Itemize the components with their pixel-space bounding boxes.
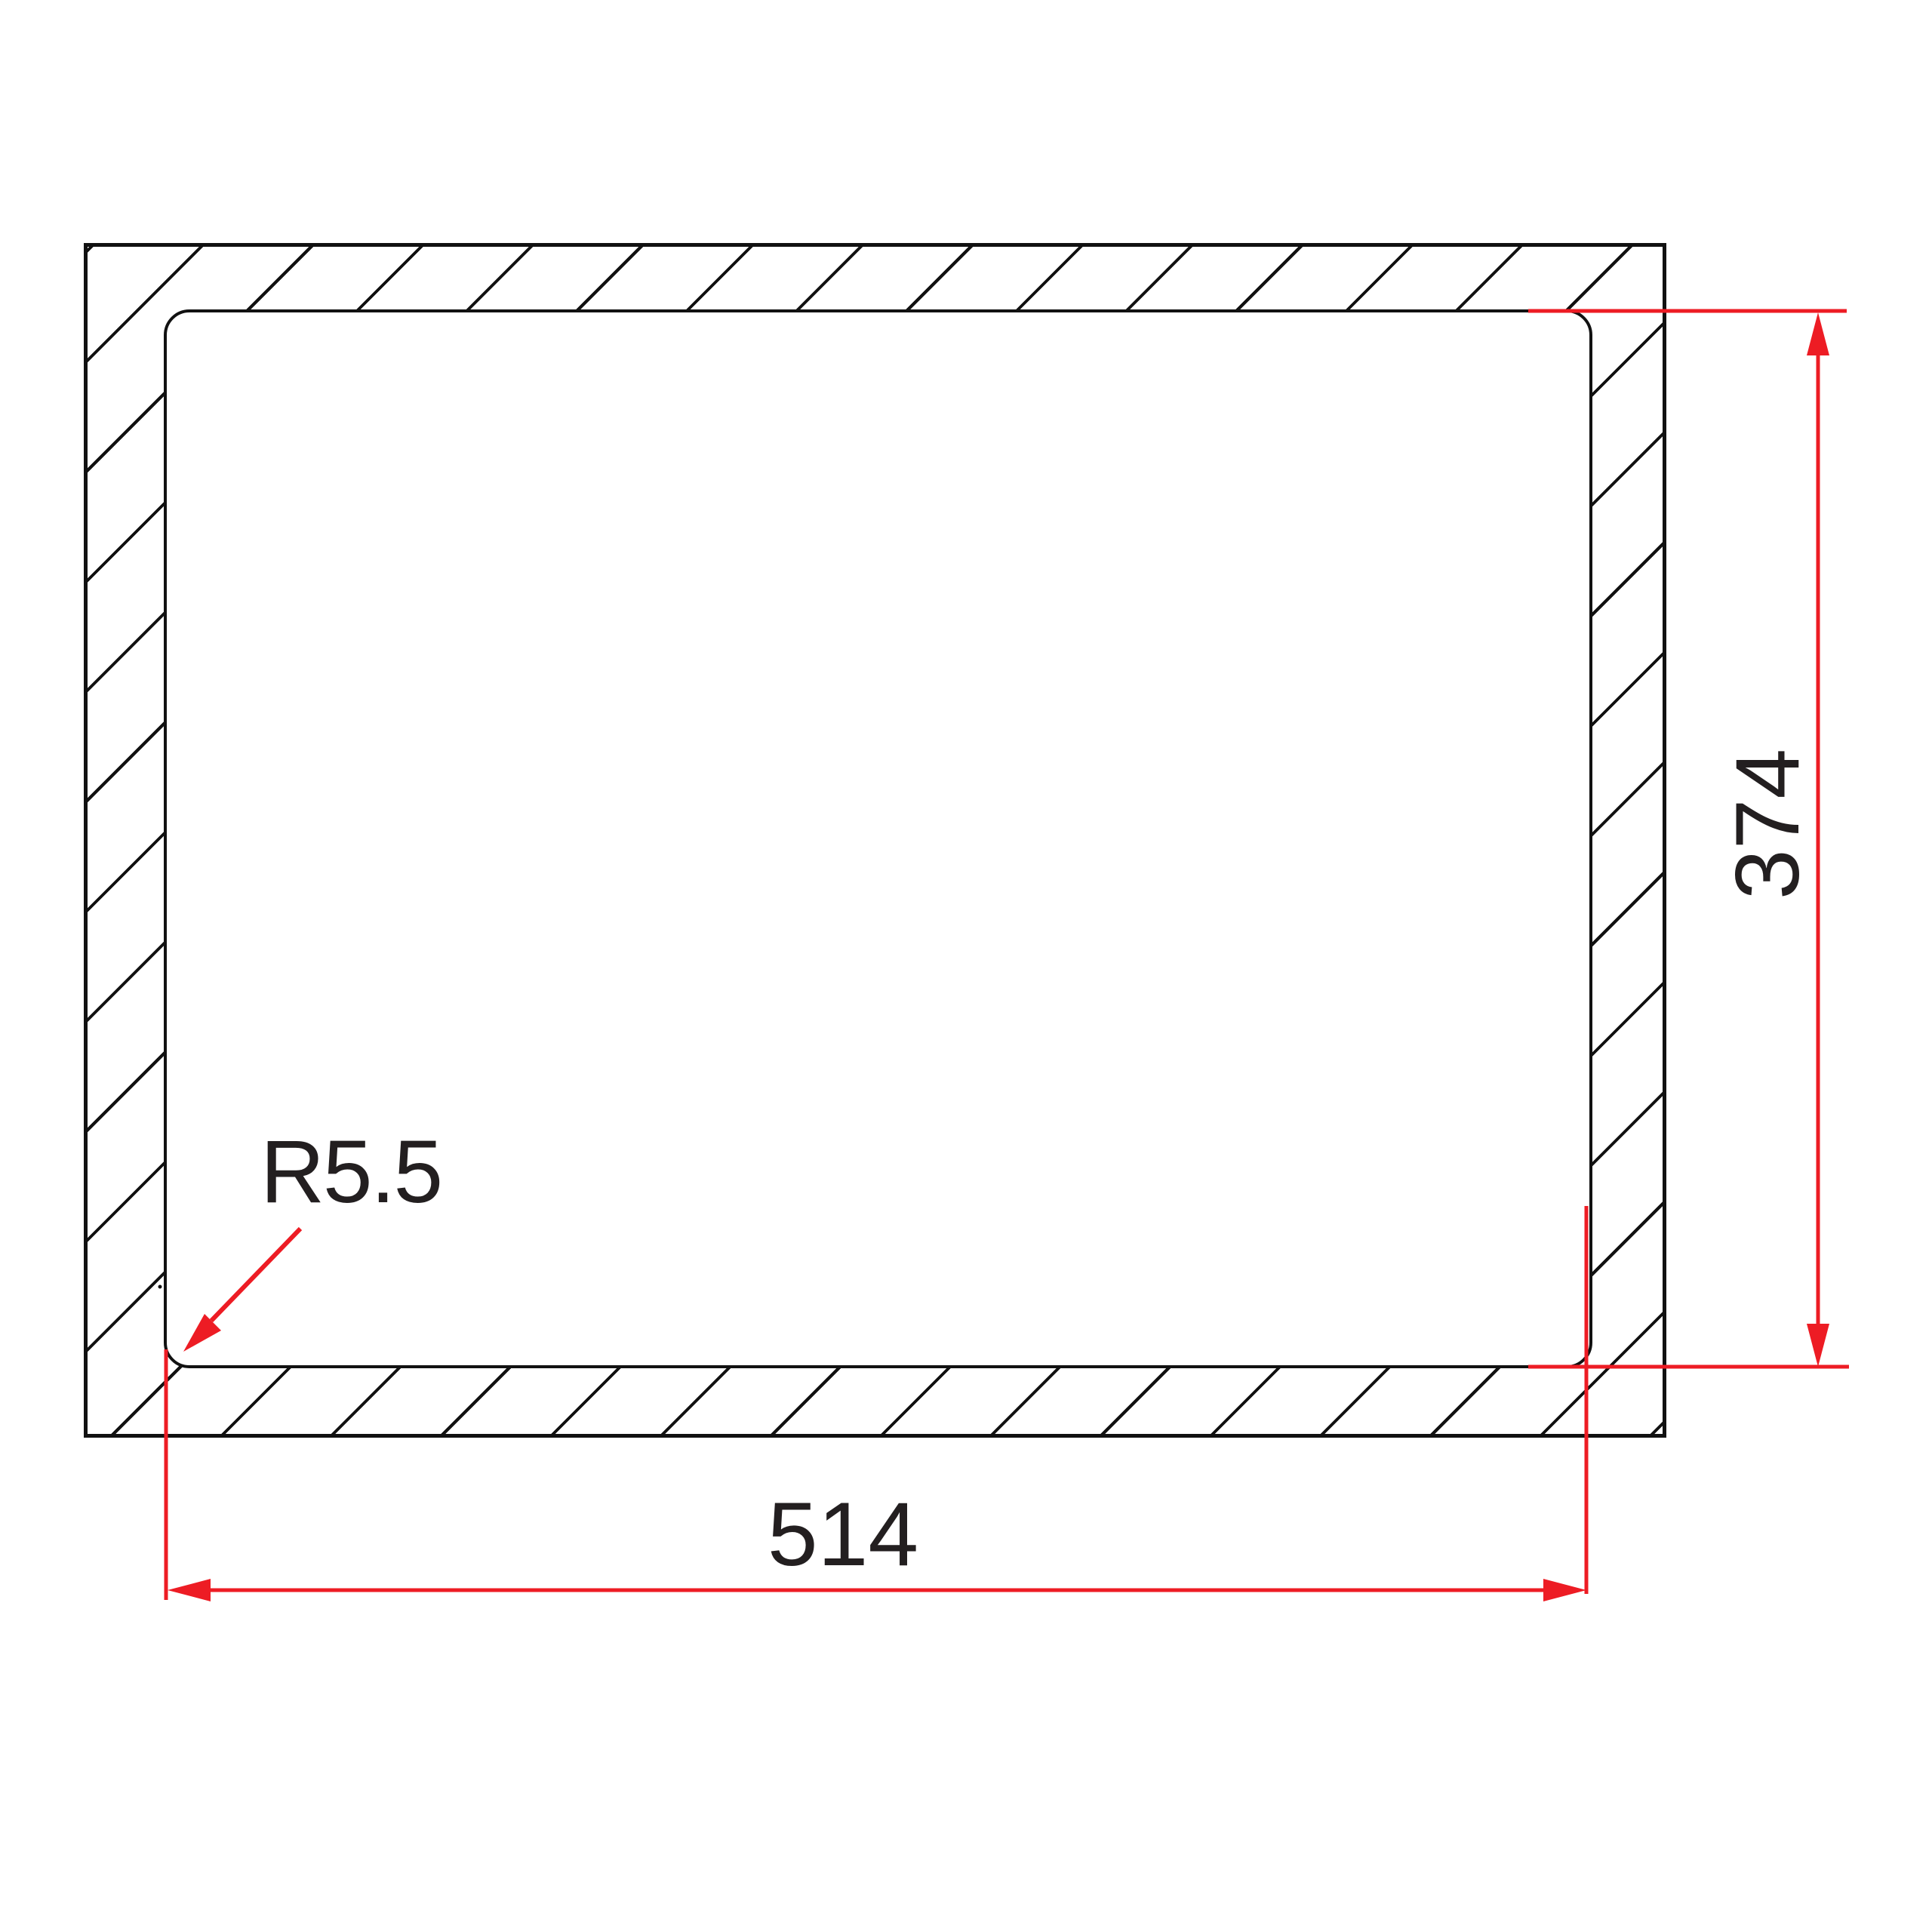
height-arrow-bottom (1807, 1324, 1829, 1367)
technical-drawing-canvas: 514 374 R5.5 (0, 0, 1932, 1932)
height-arrow-top (1807, 312, 1829, 355)
width-dimension-label: 514 (730, 1489, 956, 1580)
radius-leader-line (211, 1229, 300, 1321)
stray-dot (158, 1285, 162, 1289)
dimension-layer (0, 0, 1932, 1932)
corner-radius-label: R5.5 (260, 1128, 441, 1217)
width-arrow-left (168, 1579, 211, 1601)
width-arrow-right (1543, 1579, 1586, 1601)
height-dimension-label: 374 (1722, 711, 1813, 937)
